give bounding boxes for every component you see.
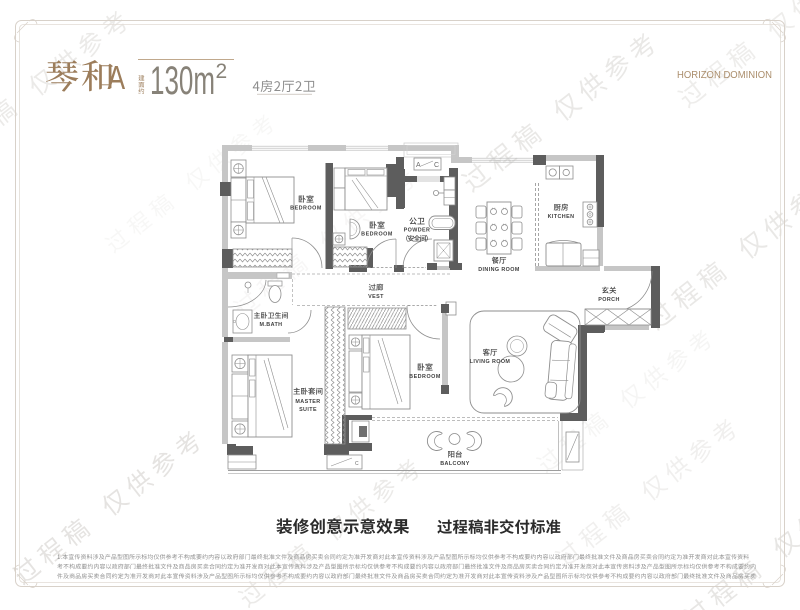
svg-text:PORCH: PORCH bbox=[598, 297, 619, 303]
svg-text:A: A bbox=[108, 60, 126, 96]
svg-text:130m: 130m bbox=[150, 59, 215, 103]
svg-text:BALCONY: BALCONY bbox=[440, 461, 469, 467]
svg-text:KITCHEN: KITCHEN bbox=[548, 214, 575, 220]
svg-text:BEDROOM: BEDROOM bbox=[361, 232, 393, 238]
svg-text:BEDROOM: BEDROOM bbox=[290, 206, 322, 212]
svg-text:POWDER: POWDER bbox=[404, 228, 431, 234]
svg-text:MASTER: MASTER bbox=[295, 399, 320, 405]
svg-text:M.BATH: M.BATH bbox=[260, 322, 283, 328]
svg-text:A: A bbox=[416, 162, 421, 169]
svg-text:LIVING ROOM: LIVING ROOM bbox=[470, 359, 511, 365]
svg-text:DINING ROOM: DINING ROOM bbox=[478, 267, 520, 273]
svg-text:C: C bbox=[355, 461, 359, 467]
svg-text:SUITE: SUITE bbox=[299, 407, 317, 413]
svg-text:VEST: VEST bbox=[368, 294, 384, 300]
svg-text:2: 2 bbox=[216, 60, 228, 83]
svg-text:HORIZON DOMINION: HORIZON DOMINION bbox=[677, 69, 772, 81]
svg-text:BEDROOM: BEDROOM bbox=[409, 374, 441, 380]
svg-text:C: C bbox=[434, 162, 439, 169]
